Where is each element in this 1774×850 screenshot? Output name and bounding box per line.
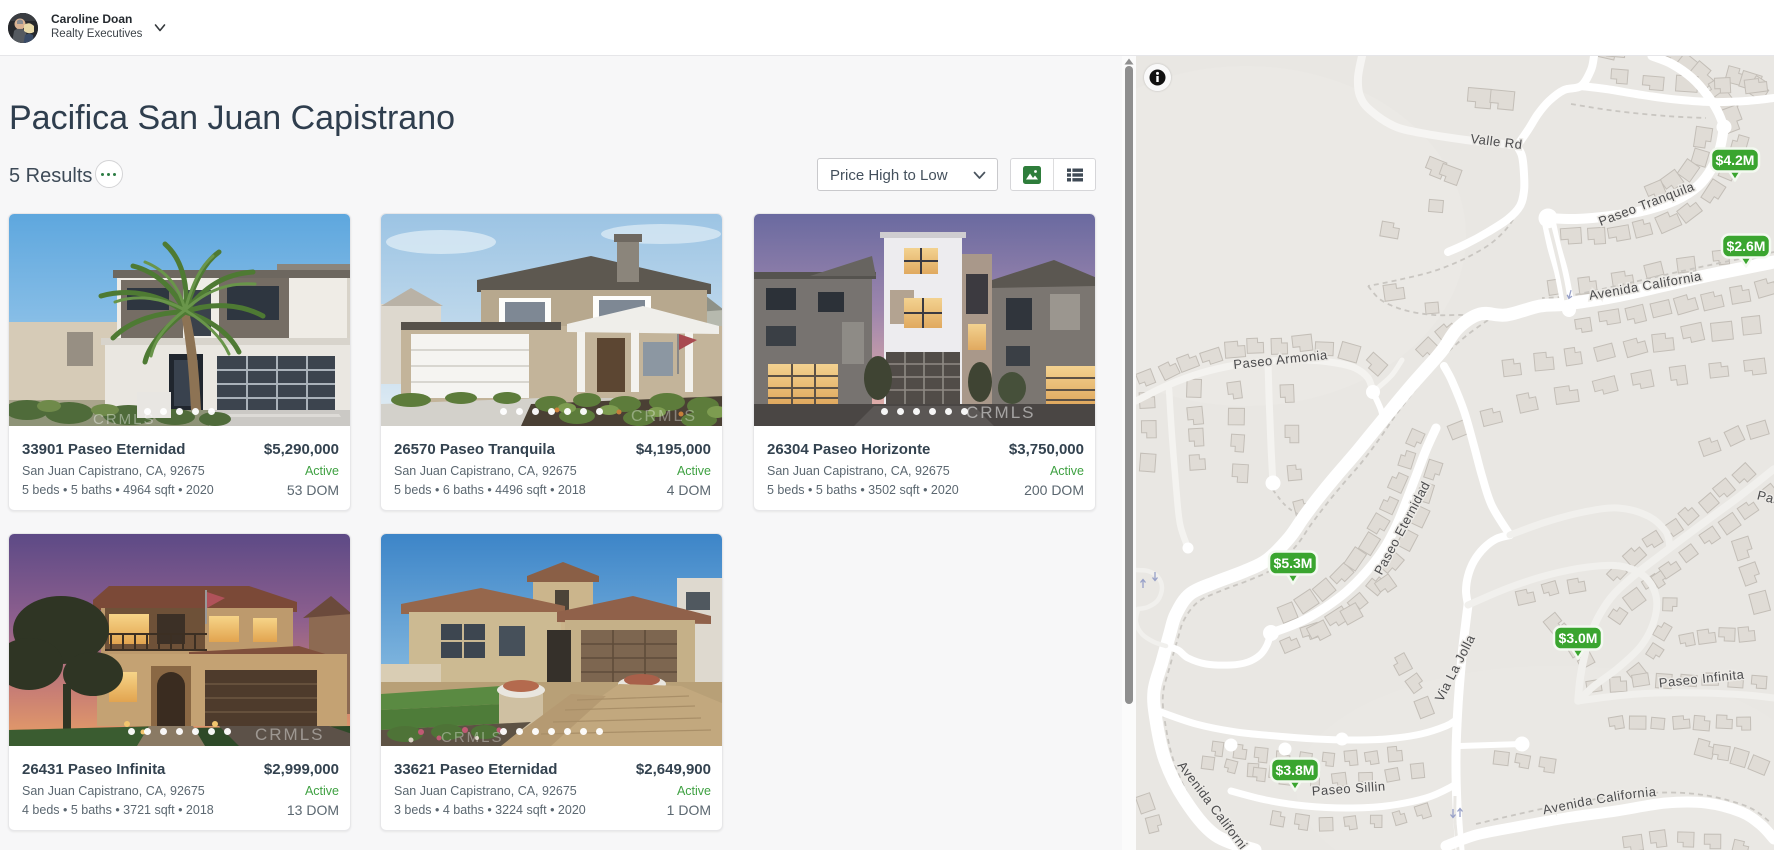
svg-text:$5.3M: $5.3M xyxy=(1274,555,1313,571)
svg-text:$3.0M: $3.0M xyxy=(1559,630,1598,646)
svg-text:$4.2M: $4.2M xyxy=(1716,152,1755,168)
svg-text:$3.8M: $3.8M xyxy=(1276,762,1315,778)
svg-text:$2.6M: $2.6M xyxy=(1727,238,1766,254)
